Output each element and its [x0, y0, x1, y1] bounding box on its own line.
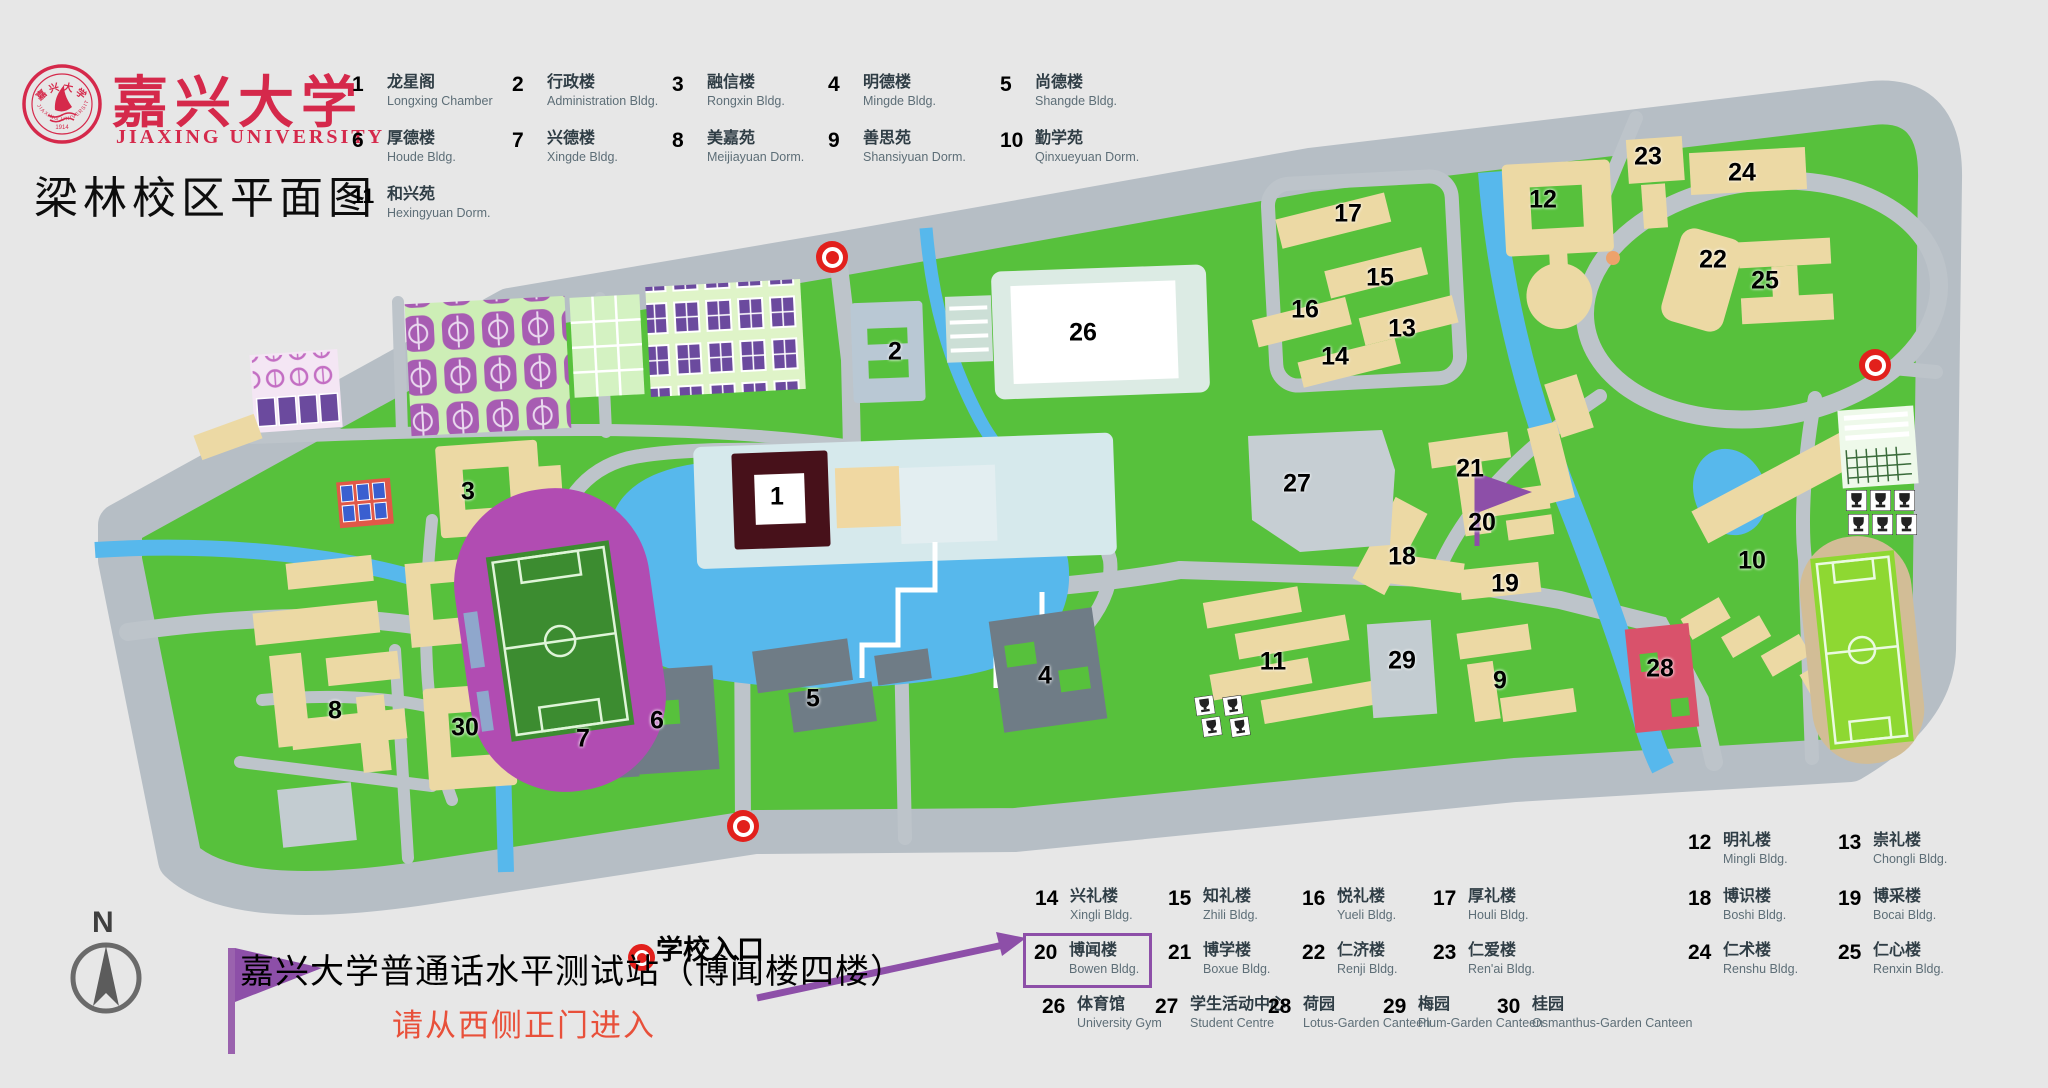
map-building-number-29: 29 — [1388, 647, 1416, 676]
map-building-number-11: 11 — [1260, 648, 1286, 677]
legend-item-number: 6 — [352, 130, 378, 152]
map-building-number-7: 7 — [576, 725, 590, 754]
legend-item-27: 27学生活动中心Student Centre — [1155, 996, 1286, 1031]
legend-item-name-en: University Gym — [1077, 1017, 1162, 1031]
legend-item-number: 12 — [1688, 832, 1714, 854]
legend-item-number: 21 — [1168, 942, 1194, 964]
legend-item-10: 10勤学苑Qinxueyuan Dorm. — [1000, 130, 1139, 165]
legend-item-name-en: Xingli Bldg. — [1070, 909, 1133, 923]
legend-item-name-en: Boshi Bldg. — [1723, 909, 1786, 923]
legend-item-1: 1龙星阁Longxing Chamber — [352, 74, 493, 109]
map-building-number-4: 4 — [1038, 662, 1052, 691]
legend-item-name-en: Xingde Bldg. — [547, 151, 618, 165]
legend-item-number: 2 — [512, 74, 538, 96]
legend-item-number: 30 — [1497, 996, 1523, 1018]
legend-item-name-cn: 兴礼楼 — [1070, 888, 1133, 906]
map-building-number-26: 26 — [1069, 319, 1097, 348]
legend-item-number: 3 — [672, 74, 698, 96]
legend-item-name-cn: 兴德楼 — [547, 130, 618, 148]
legend-item-number: 11 — [352, 186, 378, 208]
legend-item-name-cn: 仁术楼 — [1723, 942, 1798, 960]
legend-item-5: 5尚德楼Shangde Bldg. — [1000, 74, 1117, 109]
legend-item-name-cn: 博闻楼 — [1069, 942, 1139, 960]
legend-item-14: 14兴礼楼Xingli Bldg. — [1035, 888, 1133, 923]
legend-item-name-cn: 善思苑 — [863, 130, 966, 148]
legend-item-name-cn: 厚礼楼 — [1468, 888, 1528, 906]
legend-item-name-cn: 崇礼楼 — [1873, 832, 1947, 850]
map-building-number-25: 25 — [1751, 267, 1779, 296]
legend-item-name-en: Renji Bldg. — [1337, 963, 1397, 977]
map-building-number-23: 23 — [1634, 143, 1662, 172]
legend-item-name-cn: 融信楼 — [707, 74, 785, 92]
map-building-number-28: 28 — [1646, 655, 1674, 684]
map-building-number-5: 5 — [806, 685, 820, 714]
legend-item-12: 12明礼楼Mingli Bldg. — [1688, 832, 1788, 867]
school-entrance-marker-3 — [1859, 349, 1891, 381]
legend-item-3: 3融信楼Rongxin Bldg. — [672, 74, 785, 109]
legend-item-9: 9善思苑Shansiyuan Dorm. — [828, 130, 966, 165]
legend-item-name-en: Rongxin Bldg. — [707, 95, 785, 109]
legend-item-name-en: Houde Bldg. — [387, 151, 456, 165]
legend-item-name-cn: 勤学苑 — [1035, 130, 1139, 148]
legend-item-number: 27 — [1155, 996, 1181, 1018]
map-building-number-27: 27 — [1283, 470, 1311, 499]
legend-item-number: 25 — [1838, 942, 1864, 964]
parking-lot — [277, 782, 357, 847]
map-building-number-6: 6 — [650, 707, 664, 736]
school-entrance-marker-1 — [816, 241, 848, 273]
map-building-number-17: 17 — [1334, 200, 1362, 229]
legend-item-25: 25仁心楼Renxin Bldg. — [1838, 942, 1944, 977]
legend-item-name-en: Longxing Chamber — [387, 95, 493, 109]
legend-item-name-en: Zhili Bldg. — [1203, 909, 1258, 923]
legend-item-30: 30桂园Osmanthus-Garden Canteen — [1497, 996, 1693, 1031]
legend-item-18: 18博识楼Boshi Bldg. — [1688, 888, 1786, 923]
basketball-court-red — [336, 478, 394, 529]
map-building-number-13: 13 — [1388, 315, 1416, 344]
map-building-number-3: 3 — [461, 478, 475, 507]
legend-item-number: 15 — [1168, 888, 1194, 910]
page-title: 梁林校区平面图 — [34, 162, 377, 226]
legend-item-number: 7 — [512, 130, 538, 152]
legend-item-7: 7兴德楼Xingde Bldg. — [512, 130, 618, 165]
legend-item-name-en: Renxin Bldg. — [1873, 963, 1944, 977]
legend-item-name-en: Osmanthus-Garden Canteen — [1532, 1017, 1693, 1031]
legend-item-17: 17厚礼楼Houli Bldg. — [1433, 888, 1528, 923]
test-station-note: 嘉兴大学普通话水平测试站（博闻楼四楼） — [240, 944, 905, 993]
legend-item-number: 17 — [1433, 888, 1459, 910]
legend-item-4: 4明德楼Mingde Bldg. — [828, 74, 936, 109]
legend-item-name-en: Mingli Bldg. — [1723, 853, 1788, 867]
legend-item-19: 19博采楼Bocai Bldg. — [1838, 888, 1936, 923]
legend-item-number: 4 — [828, 74, 854, 96]
building-26-gym — [991, 264, 1210, 399]
legend-item-23: 23仁爱楼Ren'ai Bldg. — [1433, 942, 1535, 977]
legend-item-name-cn: 和兴苑 — [387, 186, 491, 204]
legend-item-number: 18 — [1688, 888, 1714, 910]
campus-map-page: 嘉 兴 大 学 JIAXING UNIVERSITY 1914 嘉兴大学 JIA… — [0, 0, 2048, 1088]
legend-item-11: 11和兴苑Hexingyuan Dorm. — [352, 186, 491, 221]
entrance-marker-ring — [822, 247, 843, 268]
map-building-number-15: 15 — [1366, 264, 1394, 293]
legend-item-number: 5 — [1000, 74, 1026, 96]
legend-item-name-en: Hexingyuan Dorm. — [387, 207, 491, 221]
svg-text:1914: 1914 — [55, 125, 69, 131]
legend-item-name-cn: 行政楼 — [547, 74, 658, 92]
map-building-number-8: 8 — [328, 697, 342, 726]
legend-item-20: 20博闻楼Bowen Bldg. — [1023, 933, 1152, 988]
legend-item-name-en: Renshu Bldg. — [1723, 963, 1798, 977]
map-building-number-16: 16 — [1291, 296, 1319, 325]
legend-item-name-cn: 明礼楼 — [1723, 832, 1788, 850]
legend-item-number: 1 — [352, 74, 378, 96]
legend-item-number: 19 — [1838, 888, 1864, 910]
legend-item-number: 23 — [1433, 942, 1459, 964]
legend-item-name-en: Bocai Bldg. — [1873, 909, 1936, 923]
legend-item-15: 15知礼楼Zhili Bldg. — [1168, 888, 1258, 923]
university-seal-logo: 嘉 兴 大 学 JIAXING UNIVERSITY 1914 — [24, 66, 100, 142]
legend-item-number: 16 — [1302, 888, 1328, 910]
compass-north-label: N — [92, 906, 114, 940]
bleachers — [945, 295, 993, 363]
legend-item-name-cn: 博采楼 — [1873, 888, 1936, 906]
legend-item-22: 22仁济楼Renji Bldg. — [1302, 942, 1397, 977]
map-building-number-24: 24 — [1728, 159, 1756, 188]
map-building-number-1: 1 — [758, 480, 796, 515]
legend-item-name-cn: 悦礼楼 — [1337, 888, 1396, 906]
legend-item-6: 6厚德楼Houde Bldg. — [352, 130, 456, 165]
legend-item-name-cn: 尚德楼 — [1035, 74, 1117, 92]
legend-item-13: 13崇礼楼Chongli Bldg. — [1838, 832, 1947, 867]
map-building-number-14: 14 — [1321, 343, 1349, 372]
legend-item-number: 22 — [1302, 942, 1328, 964]
legend-item-name-en: Bowen Bldg. — [1069, 963, 1139, 977]
legend-item-name-en: Administration Bldg. — [547, 95, 658, 109]
legend-item-name-en: Ren'ai Bldg. — [1468, 963, 1535, 977]
legend-item-name-cn: 知礼楼 — [1203, 888, 1258, 906]
legend-item-number: 9 — [828, 130, 854, 152]
map-building-number-9: 9 — [1493, 667, 1507, 696]
legend-item-24: 24仁术楼Renshu Bldg. — [1688, 942, 1798, 977]
legend-item-name-cn: 厚德楼 — [387, 130, 456, 148]
entry-instruction-note: 请从西侧正门进入 — [392, 1000, 656, 1045]
legend-item-name-cn: 博识楼 — [1723, 888, 1786, 906]
legend-item-number: 24 — [1688, 942, 1714, 964]
legend-item-number: 20 — [1034, 942, 1060, 964]
compass-icon — [73, 945, 139, 1011]
legend-item-number: 8 — [672, 130, 698, 152]
legend-item-name-en: Shangde Bldg. — [1035, 95, 1117, 109]
legend-item-name-en: Mingde Bldg. — [863, 95, 936, 109]
legend-item-number: 28 — [1268, 996, 1294, 1018]
map-building-number-22: 22 — [1699, 246, 1727, 275]
legend-item-name-cn: 明德楼 — [863, 74, 936, 92]
map-building-number-12: 12 — [1529, 186, 1557, 215]
legend-item-16: 16悦礼楼Yueli Bldg. — [1302, 888, 1396, 923]
small-orange-dot — [1606, 251, 1620, 265]
map-building-number-20: 20 — [1468, 509, 1496, 538]
legend-item-2: 2行政楼Administration Bldg. — [512, 74, 658, 109]
legend-item-number: 26 — [1042, 996, 1068, 1018]
entrance-marker-ring — [733, 816, 754, 837]
map-building-number-10: 10 — [1738, 547, 1766, 576]
legend-item-name-cn: 仁心楼 — [1873, 942, 1944, 960]
legend-item-name-cn: 龙星阁 — [387, 74, 493, 92]
legend-item-name-en: Yueli Bldg. — [1337, 909, 1396, 923]
legend-item-26: 26体育馆University Gym — [1042, 996, 1162, 1031]
map-building-number-18: 18 — [1388, 543, 1416, 572]
legend-item-name-en: Boxue Bldg. — [1203, 963, 1270, 977]
legend-item-name-cn: 美嘉苑 — [707, 130, 804, 148]
legend-item-name-cn: 桂园 — [1532, 996, 1693, 1014]
map-building-number-30: 30 — [451, 714, 479, 743]
map-building-number-21: 21 — [1456, 455, 1484, 484]
legend-item-number: 10 — [1000, 130, 1026, 152]
legend-item-name-en: Qinxueyuan Dorm. — [1035, 151, 1139, 165]
legend-item-name-cn: 博学楼 — [1203, 942, 1270, 960]
school-entrance-marker-2 — [727, 810, 759, 842]
legend-item-number: 14 — [1035, 888, 1061, 910]
volleyball-courts — [1837, 405, 1918, 488]
university-name-en: JIAXING UNIVERSITY — [116, 126, 385, 149]
legend-item-name-cn: 仁济楼 — [1337, 942, 1397, 960]
legend-item-name-cn: 仁爱楼 — [1468, 942, 1535, 960]
legend-item-name-en: Chongli Bldg. — [1873, 853, 1947, 867]
legend-item-21: 21博学楼Boxue Bldg. — [1168, 942, 1270, 977]
legend-item-name-en: Shansiyuan Dorm. — [863, 151, 966, 165]
legend-item-name-en: Houli Bldg. — [1468, 909, 1528, 923]
legend-item-number: 13 — [1838, 832, 1864, 854]
legend-item-name-en: Meijiayuan Dorm. — [707, 151, 804, 165]
legend-item-8: 8美嘉苑Meijiayuan Dorm. — [672, 130, 804, 165]
map-building-number-19: 19 — [1491, 570, 1519, 599]
map-building-number-2: 2 — [888, 338, 902, 367]
entrance-marker-ring — [1865, 355, 1886, 376]
legend-item-name-cn: 体育馆 — [1077, 996, 1162, 1014]
legend-item-number: 29 — [1383, 996, 1409, 1018]
